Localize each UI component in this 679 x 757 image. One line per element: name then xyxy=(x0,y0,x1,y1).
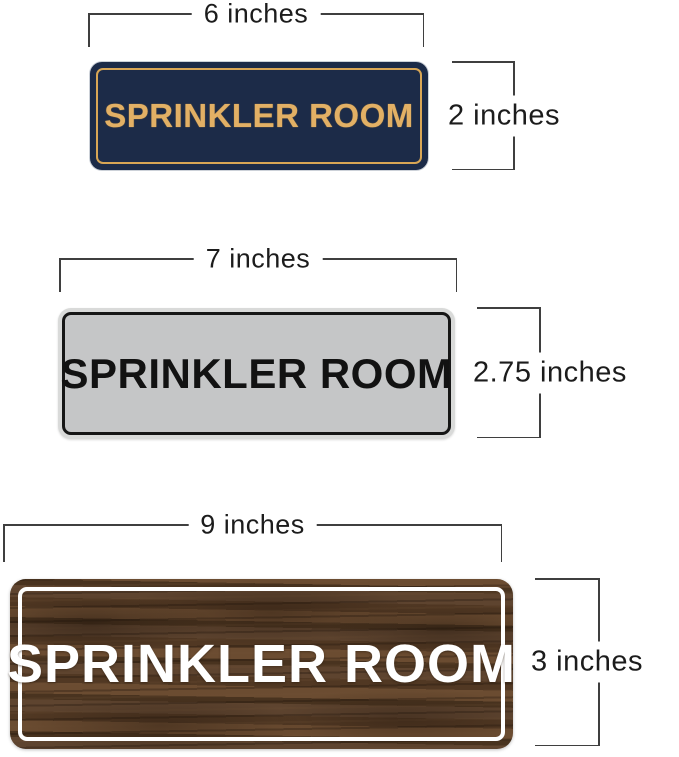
width-dimension-label: 9 inches xyxy=(188,510,317,541)
height-dimension-label: 2 inches xyxy=(448,95,566,136)
dimension-tick xyxy=(501,524,503,562)
dimension-tick xyxy=(88,13,90,47)
sign-silver-7x275: SPRINKLER ROOM xyxy=(58,308,455,439)
dimension-tick xyxy=(59,258,61,292)
width-dimension-7in: 7 inches xyxy=(59,258,457,292)
dimension-tick xyxy=(452,169,514,171)
width-dimension-label: 6 inches xyxy=(192,0,321,30)
sign-wood-9x3: SPRINKLER ROOM xyxy=(10,579,513,749)
dimension-tick xyxy=(3,524,5,562)
width-dimension-9in: 9 inches xyxy=(3,524,502,562)
height-dimension-2in: 2 inches xyxy=(452,61,587,170)
dimension-tick xyxy=(477,437,540,439)
width-dimension-label: 7 inches xyxy=(194,244,323,275)
sign-navy-6x2: SPRINKLER ROOM xyxy=(90,62,428,170)
height-dimension-275in: 2.75 inches xyxy=(477,307,649,438)
sign-label: SPRINKLER ROOM xyxy=(104,97,414,135)
width-dimension-6in: 6 inches xyxy=(88,13,424,47)
height-dimension-3in: 3 inches xyxy=(535,578,677,746)
dimension-tick xyxy=(477,307,540,309)
dimension-tick xyxy=(535,578,599,580)
sign-label: SPRINKLER ROOM xyxy=(60,350,452,398)
height-dimension-label: 2.75 inches xyxy=(473,352,633,393)
dimension-tick xyxy=(456,258,458,292)
sign-label: SPRINKLER ROOM xyxy=(7,633,516,695)
dimension-tick xyxy=(423,13,425,47)
height-dimension-label: 3 inches xyxy=(531,642,649,683)
product-dimension-diagram: 6 inches SPRINKLER ROOM 2 inches 7 inche… xyxy=(0,0,679,757)
dimension-tick xyxy=(452,61,514,63)
dimension-tick xyxy=(535,745,599,747)
